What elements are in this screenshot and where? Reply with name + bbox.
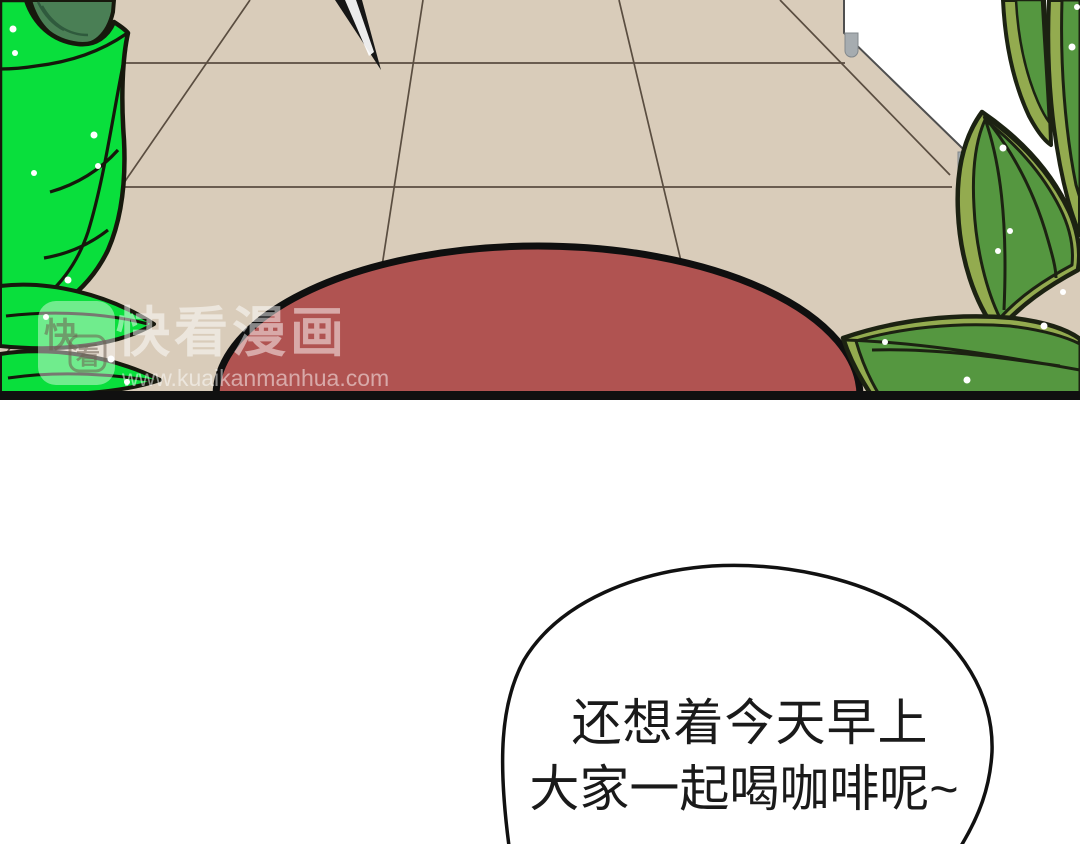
- counter-foot-tab-1: [845, 33, 858, 57]
- kuaikan-logo-char2: 看: [76, 343, 100, 370]
- kuaikan-logo-icon: 快 看: [38, 301, 115, 385]
- speech-bubble: 还想着今天早上 大家一起喝咖啡呢~: [503, 565, 993, 844]
- watermark-url-text: www.kuaikanmanhua.com: [121, 365, 389, 391]
- speech-bubble-line1: 还想着今天早上: [572, 695, 929, 751]
- speech-bubble-line2: 大家一起喝咖啡呢~: [529, 761, 958, 817]
- panel-bottom-edge: [0, 391, 1080, 400]
- watermark-brand-text: 快看漫画: [116, 303, 348, 363]
- horizontal-leaf-inner: [856, 325, 1080, 396]
- comic-page: 快 看 快看漫画 www.kuaikanmanhua.com 还想着今天早上 大…: [0, 0, 1080, 844]
- floor-panel: 快 看 快看漫画 www.kuaikanmanhua.com: [0, 0, 1080, 400]
- watermark: 快 看 快看漫画 www.kuaikanmanhua.com: [38, 301, 389, 391]
- comic-panel-art: 快 看 快看漫画 www.kuaikanmanhua.com 还想着今天早上 大…: [0, 0, 1080, 844]
